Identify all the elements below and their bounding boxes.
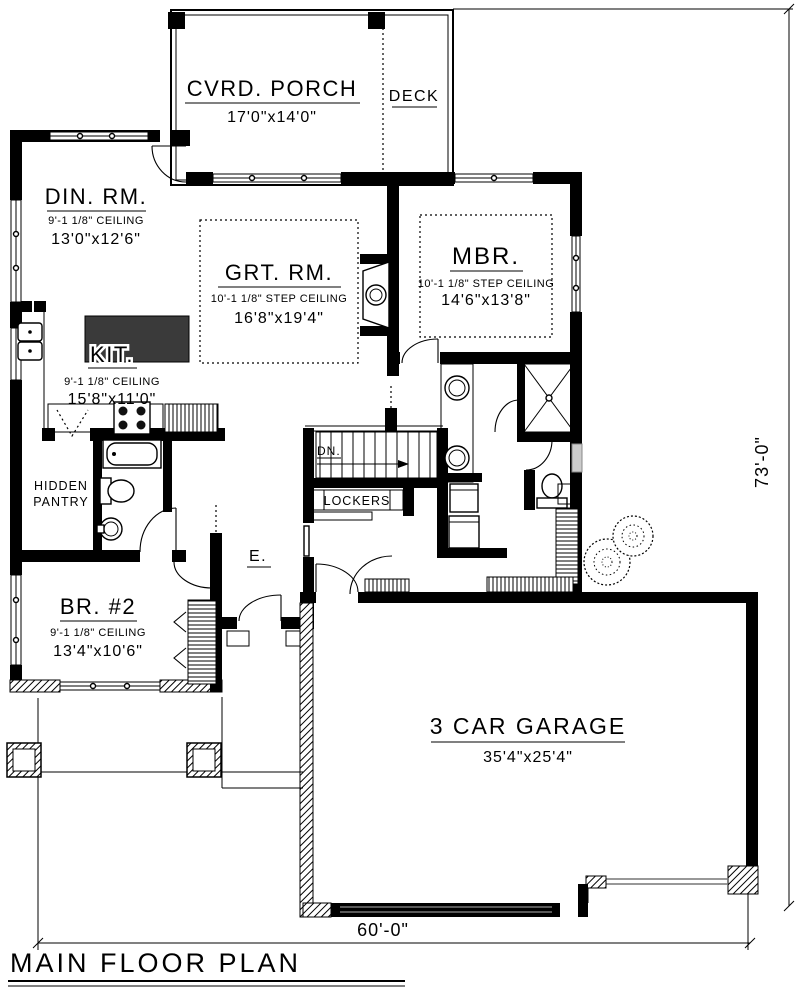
- great-size: 16'8"x19'4": [234, 310, 324, 327]
- great-label: GRT. RM.: [225, 260, 333, 285]
- wall: [358, 592, 758, 603]
- window-dot: [302, 176, 307, 181]
- master-size: 14'6"x13'8": [441, 292, 531, 309]
- wall: [10, 130, 22, 200]
- pantry-label-2: PANTRY: [33, 495, 89, 509]
- window-dot: [125, 684, 130, 689]
- wall: [437, 473, 482, 482]
- sink-drain: [28, 349, 32, 353]
- wall-hatched: [303, 903, 331, 917]
- wall: [440, 352, 582, 364]
- shower-drain: [546, 395, 552, 401]
- closet-shelving: [556, 508, 578, 584]
- plan-title: MAIN FLOOR PLAN: [10, 948, 301, 978]
- fireplace-flue-outer: [366, 285, 386, 305]
- porch-column-core: [193, 749, 215, 771]
- kitchen-size: 15'8"x11'0": [68, 391, 157, 408]
- great-ceiling: 10'-1 1/8" STEP CEILING: [211, 293, 348, 305]
- sink-tap: [97, 525, 104, 533]
- toilet-bowl: [108, 480, 134, 502]
- garage-label: 3 CAR GARAGE: [430, 713, 627, 739]
- wall: [385, 408, 397, 432]
- master-label: MBR.: [452, 243, 520, 270]
- burner: [137, 421, 146, 430]
- bed2-label: BR. #2: [60, 594, 136, 619]
- master-ceiling: 10'-1 1/8" STEP CEILING: [418, 278, 555, 290]
- window-dot: [110, 134, 115, 139]
- bench-cubbies: [365, 579, 409, 592]
- floor-plan-sheet: 60'-0" 73'-0" CVRD. PORCH 17'0"x14'0" DE…: [0, 0, 800, 990]
- tub-drain: [112, 452, 116, 456]
- bed2-ceiling: 9'-1 1/8" CEILING: [50, 627, 146, 639]
- wall: [437, 548, 507, 558]
- washer: [450, 484, 478, 512]
- bench-cubbies: [487, 577, 573, 592]
- kitchen-label: KIT.: [90, 342, 134, 367]
- wall-niche: [572, 444, 582, 472]
- wall-hatched: [728, 866, 758, 894]
- window-dot: [574, 256, 579, 261]
- kitchen-ceiling: 9'-1 1/8" CEILING: [64, 376, 160, 388]
- wall: [10, 380, 22, 575]
- counter-appliance: [34, 301, 46, 312]
- dining-size: 13'0"x12'6": [51, 231, 141, 248]
- window-dot: [14, 232, 19, 237]
- dining-ceiling: 9'-1 1/8" CEILING: [48, 215, 144, 227]
- wall: [387, 352, 400, 364]
- window-dot: [574, 286, 579, 291]
- wall: [578, 884, 588, 917]
- window-dot: [492, 176, 497, 181]
- bed2-size: 13'4"x10'6": [53, 643, 143, 660]
- wall: [12, 550, 140, 562]
- wall-hatched: [300, 603, 313, 917]
- wall: [517, 432, 582, 442]
- sink-drain: [28, 330, 32, 334]
- wall: [300, 592, 316, 603]
- window-dot: [250, 176, 255, 181]
- dining-label: DIN. RM.: [45, 184, 147, 209]
- dryer: [449, 516, 479, 548]
- toilet-bowl: [542, 474, 562, 498]
- window-dot: [91, 684, 96, 689]
- garage-size: 35'4"x25'4": [483, 749, 573, 766]
- window-dot: [78, 134, 83, 139]
- wall: [746, 592, 758, 872]
- deck-label: DECK: [389, 88, 439, 105]
- toilet-tank: [537, 498, 567, 508]
- stair-label: DN.: [317, 444, 341, 458]
- window-dot: [14, 266, 19, 271]
- wall: [331, 903, 560, 917]
- porch-post: [168, 12, 185, 29]
- wall: [437, 428, 448, 558]
- porch-size: 17'0"x14'0": [227, 109, 317, 126]
- window-dot: [14, 598, 19, 603]
- window-dot: [14, 638, 19, 643]
- burner: [119, 421, 128, 430]
- dim-width-label: 60'-0": [357, 920, 409, 940]
- porch-label: CVRD. PORCH: [187, 76, 358, 101]
- wall: [303, 478, 448, 488]
- porch-column-core: [13, 749, 35, 771]
- closet-shelving: [165, 404, 218, 432]
- lockers-label: LOCKERS: [324, 494, 391, 508]
- counter-appliance: [21, 301, 32, 312]
- wall: [186, 172, 213, 184]
- floor-plan-drawing: 60'-0" 73'-0" CVRD. PORCH 17'0"x14'0" DE…: [0, 0, 800, 990]
- dining-room: DIN. RM. 9'-1 1/8" CEILING 13'0"x12'6": [45, 184, 147, 248]
- wall-hatched: [10, 680, 60, 692]
- pocket-door: [304, 526, 309, 556]
- bush: [613, 516, 653, 556]
- wall: [570, 172, 582, 236]
- wall: [163, 437, 172, 512]
- pantry-label-1: HIDDEN: [34, 479, 88, 493]
- wall-hatched: [586, 876, 606, 888]
- closet-shelving: [188, 600, 216, 684]
- wall: [215, 617, 237, 629]
- entry-label: E.: [249, 548, 267, 565]
- wall: [172, 550, 186, 562]
- wall: [524, 470, 535, 510]
- dim-height-label: 73'-0": [752, 436, 772, 488]
- wall: [172, 130, 190, 146]
- porch-post: [368, 12, 385, 29]
